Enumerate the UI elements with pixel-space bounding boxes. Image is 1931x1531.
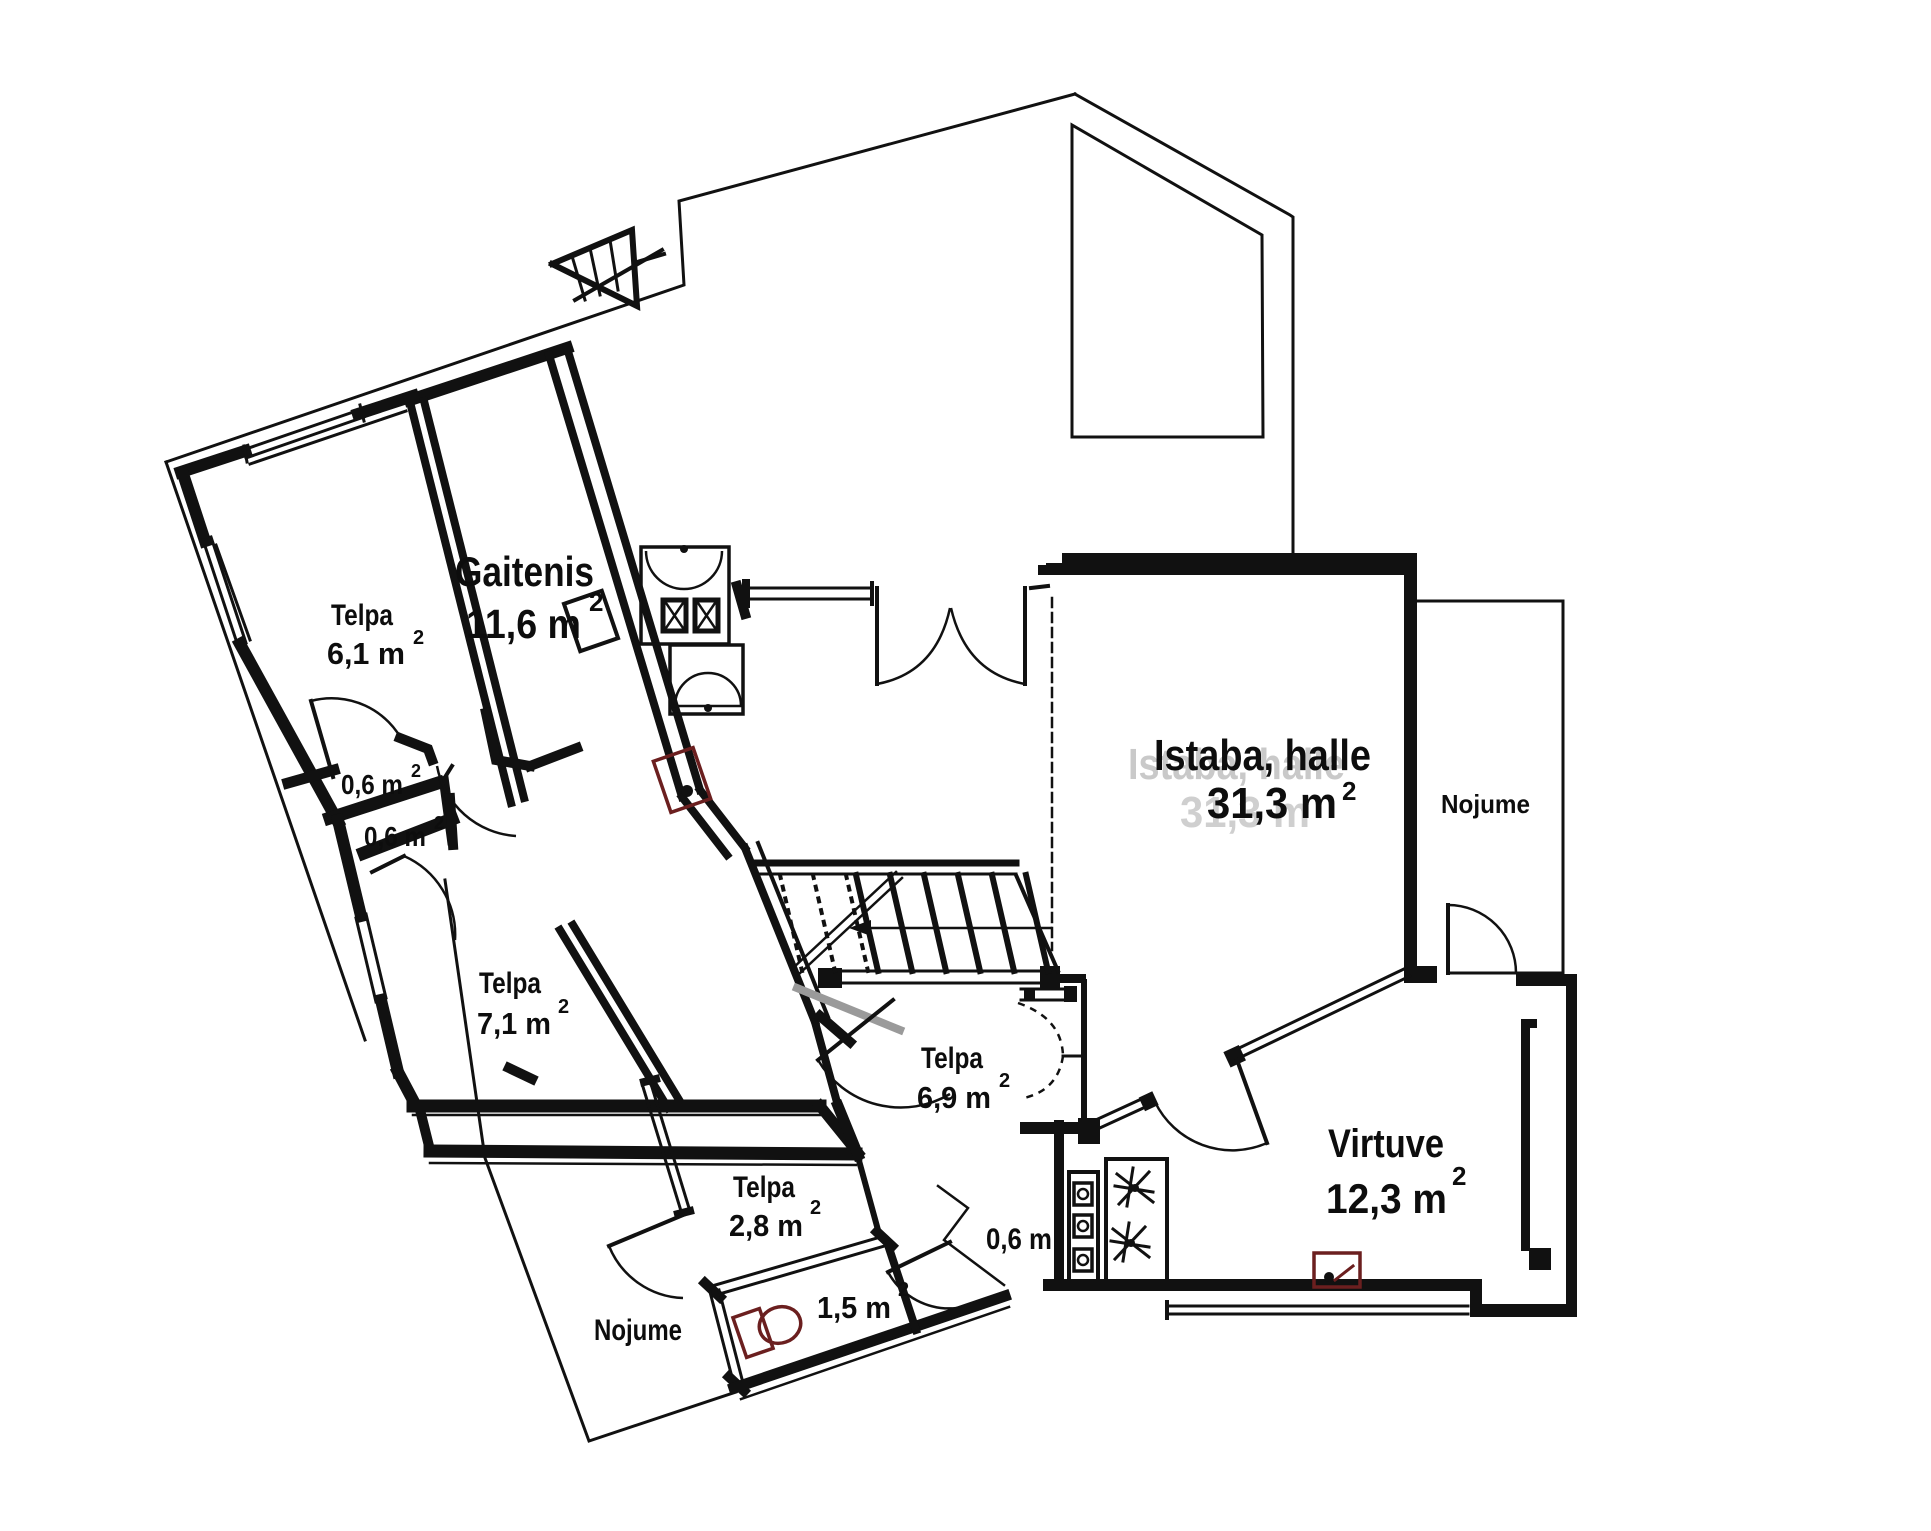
svg-text:0,6 m: 0,6 m [364, 821, 426, 852]
svg-text:1,5 m: 1,5 m [817, 1290, 891, 1325]
svg-text:Virtuve: Virtuve [1328, 1122, 1444, 1166]
svg-text:2: 2 [1452, 1161, 1466, 1191]
svg-text:6,9 m: 6,9 m [917, 1080, 991, 1115]
svg-text:2: 2 [898, 1279, 909, 1301]
svg-text:Telpa: Telpa [331, 599, 393, 632]
svg-text:2: 2 [413, 627, 424, 649]
svg-text:2,8 m: 2,8 m [729, 1208, 803, 1243]
svg-text:2: 2 [999, 1070, 1010, 1092]
svg-text:Gaitenis: Gaitenis [455, 548, 594, 595]
svg-text:0,6 m: 0,6 m [986, 1223, 1052, 1256]
svg-text:0,6 m: 0,6 m [341, 769, 403, 800]
svg-text:2: 2 [1342, 776, 1356, 806]
svg-text:2: 2 [411, 761, 421, 781]
svg-text:2: 2 [434, 813, 444, 833]
svg-text:Nojume: Nojume [594, 1314, 682, 1347]
svg-text:2: 2 [558, 996, 569, 1018]
svg-text:Telpa: Telpa [733, 1171, 795, 1204]
svg-text:12,3 m: 12,3 m [1326, 1175, 1447, 1222]
svg-text:Telpa: Telpa [479, 967, 541, 1000]
svg-text:2: 2 [810, 1197, 821, 1219]
svg-text:Telpa: Telpa [921, 1042, 983, 1075]
svg-text:Istaba, halle: Istaba, halle [1154, 731, 1371, 780]
svg-text:31,3 m: 31,3 m [1207, 779, 1337, 828]
svg-text:Nojume: Nojume [1441, 789, 1530, 819]
svg-text:7,1 m: 7,1 m [477, 1006, 551, 1041]
svg-text:2: 2 [589, 587, 603, 617]
svg-text:6,1 m: 6,1 m [327, 636, 405, 671]
svg-text:11,6 m: 11,6 m [466, 601, 581, 647]
